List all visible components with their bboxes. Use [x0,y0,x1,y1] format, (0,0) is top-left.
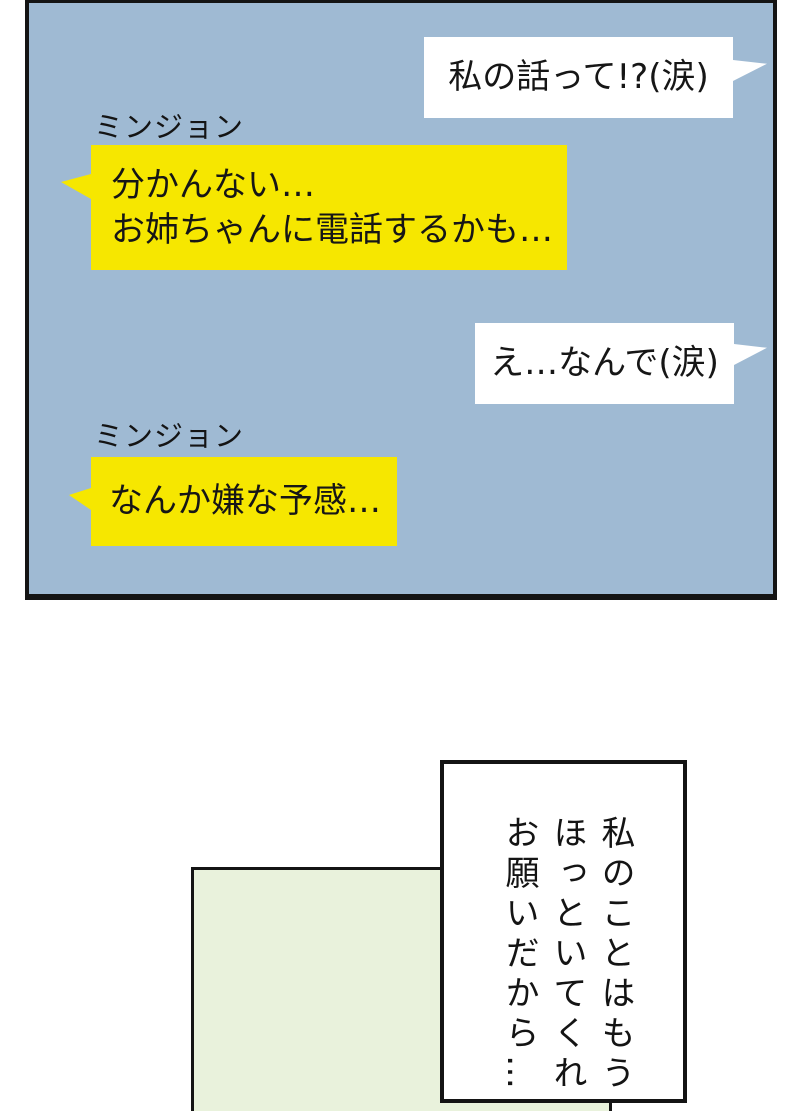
chat-bubble-left-1-tail [61,174,91,199]
chat-bubble-left-2-tail [69,488,91,510]
sender-name-label-2: ミンジョン [94,413,244,455]
chat-bubble-right-2-tail [734,344,767,365]
chat-bubble-right-1-text: 私の話って!?(涙) [448,55,709,99]
narration-box: 私のことはもう ほっといてくれ お願いだから… [440,760,687,1103]
chat-bubble-right-1-tail [733,60,767,81]
sender-name-label-1: ミンジョン [94,104,244,146]
chat-bubble-left-1-line-2: お姉ちゃんに電話するかも… [111,208,553,252]
comic-page: 私の話って!?(涙) ミンジョン 分かんない… お姉ちゃんに電話するかも… え…… [0,0,800,1111]
chat-bubble-right-2: え…なんで(涙) [475,323,734,404]
narration-line-1: 私のことはもう [591,815,639,1085]
chat-panel: 私の話って!?(涙) ミンジョン 分かんない… お姉ちゃんに電話するかも… え…… [25,0,777,600]
chat-bubble-left-2-line-1: なんか嫌な予感… [109,479,381,523]
narration-line-3: お願いだから… [495,815,543,1085]
narration-line-2: ほっといてくれ [543,815,591,1085]
chat-bubble-right-1: 私の話って!?(涙) [424,37,733,118]
chat-bubble-left-2: なんか嫌な予感… [91,457,397,546]
narration-vertical-text: 私のことはもう ほっといてくれ お願いだから… [454,815,639,1085]
chat-bubble-right-2-text: え…なんで(涙) [490,341,719,385]
chat-bubble-left-1: 分かんない… お姉ちゃんに電話するかも… [91,145,567,270]
chat-bubble-left-1-line-1: 分かんない… [111,163,315,207]
